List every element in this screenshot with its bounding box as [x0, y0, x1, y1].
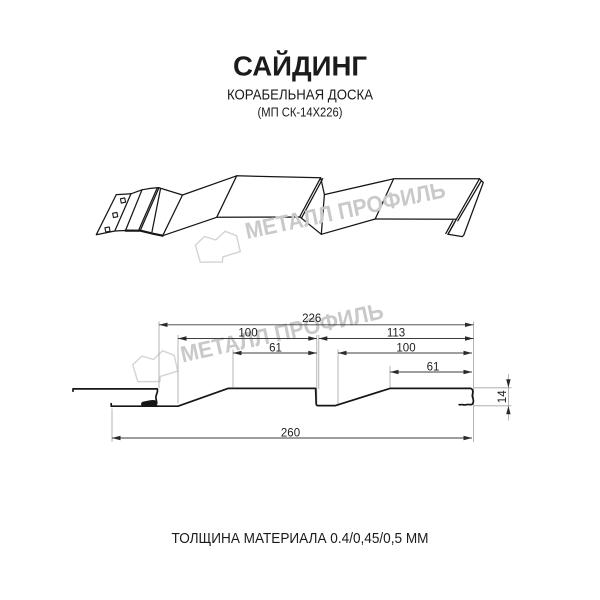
svg-text:(МП СК-14Х226): (МП СК-14Х226): [258, 106, 343, 120]
svg-text:ТОЛЩИНА МАТЕРИАЛА 0.4/0,45/0,5: ТОЛЩИНА МАТЕРИАЛА 0.4/0,45/0,5 ММ: [172, 530, 429, 547]
svg-text:226: 226: [302, 313, 321, 325]
svg-text:100: 100: [238, 328, 257, 340]
svg-text:14: 14: [497, 390, 509, 403]
svg-text:61: 61: [427, 361, 440, 373]
svg-text:САЙДИНГ: САЙДИНГ: [233, 50, 367, 82]
svg-text:КОРАБЕЛЬНАЯ ДОСКА: КОРАБЕЛЬНАЯ ДОСКА: [227, 87, 373, 104]
svg-text:113: 113: [387, 328, 405, 340]
svg-text:260: 260: [281, 427, 300, 439]
svg-text:100: 100: [396, 342, 415, 354]
svg-text:61: 61: [269, 342, 282, 354]
